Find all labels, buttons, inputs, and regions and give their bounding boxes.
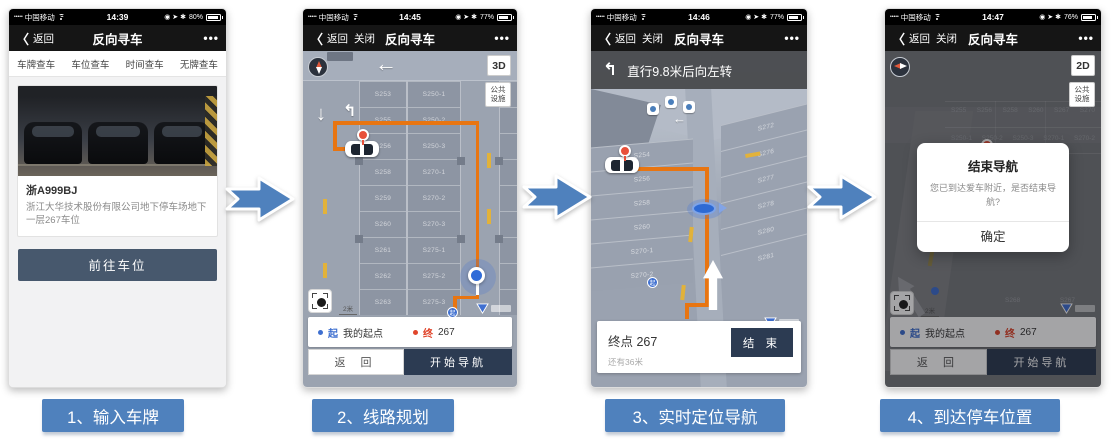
stall-label-row: S250-1 S250-2 S250-3 S270-1 S270-2 [951, 135, 1095, 142]
route-segment [685, 303, 689, 319]
lane-arrow-up-icon [703, 259, 723, 311]
parking-stall: S250-2 [408, 107, 460, 133]
parking-stall: S260 [1028, 107, 1043, 114]
parking-stall: S268 [1005, 297, 1020, 304]
parking-stall: S270-3 [408, 211, 460, 237]
status-time: 14:39 [9, 12, 226, 22]
map-scale: 2米 [921, 305, 939, 317]
phone-1-screenshot: ••••• 中国移动 14:39 ◉ ➤ ✱ 80% 〈 返回 反向寻车 •••… [8, 8, 227, 388]
facility-icon [647, 103, 659, 115]
start-tag: 起 [910, 325, 920, 340]
battery-icon [1081, 14, 1096, 21]
parking-map-3d[interactable]: ↰ 直行9.8米后向左转 ← S254 S256 S258 S260 S270-… [591, 51, 807, 387]
status-bar: ••••• 中国移动 14:46 ◉ ➤ ✱ 77% [591, 9, 807, 25]
pillar [355, 235, 363, 243]
map-vendor-logo [1060, 303, 1095, 314]
locate-me-button[interactable] [308, 289, 332, 313]
status-time: 14:45 [303, 12, 517, 22]
end-navigation-button[interactable]: 结 束 [731, 328, 793, 357]
parking-stall: S259 [360, 185, 406, 211]
dialog-message: 您已到达爱车附近，是否结束导航? [917, 182, 1069, 221]
my-car-icon [605, 157, 639, 173]
compass-icon[interactable] [308, 57, 328, 77]
route-segment [333, 121, 479, 125]
end-dot-icon [413, 330, 418, 335]
garage-camera-photo [18, 86, 217, 176]
search-tabs: 车牌查车 车位查车 时间查车 无牌查车 [9, 51, 226, 77]
parking-stall: S270-1 [408, 159, 460, 185]
tab-spot-search[interactable]: 车位查车 [63, 51, 117, 76]
end-dot-icon [995, 330, 1000, 335]
lane-arrow-left-icon: ← [673, 111, 686, 126]
map-scale: 2米 [339, 303, 357, 315]
car-location-pin-icon [357, 129, 369, 141]
map-mode-3d-button[interactable]: 3D [487, 55, 511, 76]
pillar [457, 157, 465, 165]
phone-3-screenshot: ••••• 中国移动 14:46 ◉ ➤ ✱ 77% 〈 返回 关闭 反向寻车 … [590, 8, 808, 388]
parking-stall: S270-2 [1074, 135, 1095, 142]
close-button[interactable]: 关闭 [642, 31, 663, 46]
navigation-status-panel: 终点 267 结 束 还有36米 [597, 321, 801, 373]
parking-stall: S255 [951, 107, 966, 114]
back-chevron-icon: 〈 [16, 29, 29, 48]
nav-bar: 〈 返回 关闭 反向寻车 ••• [591, 25, 807, 51]
more-menu-button[interactable]: ••• [494, 31, 510, 45]
back-button[interactable]: 返回 [327, 31, 348, 46]
turn-instruction-bar: ↰ 直行9.8米后向左转 [591, 51, 807, 89]
position-dot [931, 287, 939, 295]
back-button[interactable]: 返回 [909, 31, 930, 46]
parking-stall [500, 263, 517, 289]
lane-turn-arrow-icon: ↰ [343, 101, 356, 121]
back-chevron-icon: 〈 [892, 29, 905, 48]
lane-dash [487, 153, 491, 168]
workflow-figure: ••••• 中国移动 14:39 ◉ ➤ ✱ 80% 〈 返回 反向寻车 •••… [0, 0, 1112, 447]
flow-arrow-icon [521, 173, 595, 221]
pillar [495, 157, 503, 165]
route-segment [453, 296, 479, 300]
route-summary-panel: 起 我的起点 终 267 [890, 317, 1096, 347]
parked-car-photo [24, 122, 82, 164]
status-time: 14:47 [885, 12, 1101, 22]
start-dot-icon [318, 330, 323, 335]
parking-stall: S270-2 [408, 185, 460, 211]
lane-dash [323, 263, 327, 278]
battery-icon [206, 14, 221, 21]
status-bar: ••••• 中国移动 14:39 ◉ ➤ ✱ 80% [9, 9, 226, 25]
flow-arrow-icon [224, 175, 298, 223]
status-time: 14:46 [591, 12, 807, 22]
parking-stall [500, 133, 517, 159]
start-tag: 起 [328, 325, 338, 340]
public-facility-button[interactable]: 公共设施 [1069, 82, 1095, 107]
stall-label-row: S255 S256 S258 S260 S267 S270 [951, 107, 1095, 114]
status-bar: ••••• 中国移动 14:47 ◉ ➤ ✱ 76% [885, 9, 1101, 25]
start-navigation-button[interactable]: 开始导航 [987, 349, 1096, 375]
end-point-text: 267 [438, 327, 455, 338]
parking-stall: S263 [360, 289, 406, 315]
route-segment [627, 167, 709, 171]
lane-dash [323, 199, 327, 214]
start-navigation-button[interactable]: 开始导航 [404, 349, 512, 375]
vehicle-card[interactable]: 浙A999BJ 浙江大华技术股份有限公司地下停车场地下一层267车位 [17, 85, 218, 237]
go-to-spot-button[interactable]: 前往车位 [18, 249, 217, 281]
step-label-2: 2、线路规划 [312, 399, 454, 432]
parking-map-2d[interactable]: ← ↓ ↰ S253 S255 S256 S258 S259 S260 S261… [303, 51, 517, 387]
back-chevron-icon: 〈 [310, 29, 323, 48]
parking-stall: S250-1 [408, 81, 460, 107]
parking-stall: S275-1 [408, 237, 460, 263]
step-label-3: 3、实时定位导航 [605, 399, 785, 432]
route-start-badge: 起 [647, 277, 658, 288]
parking-stall: S255 [360, 107, 406, 133]
parked-car-photo [88, 122, 148, 164]
parking-stall: S260 [360, 211, 406, 237]
stall-block-right: S272 S276 S277 S278 S280 S281 [721, 103, 807, 281]
route-summary-panel: 起 我的起点 终 267 [308, 317, 512, 347]
parking-stall: S250-3 [408, 133, 460, 159]
tab-noplate-search[interactable]: 无牌查车 [172, 51, 226, 76]
parking-stall: S270 [1080, 107, 1095, 114]
locate-me-button[interactable] [890, 291, 914, 315]
more-menu-button[interactable]: ••• [1078, 31, 1094, 45]
car-location-pin-icon [619, 145, 631, 157]
nav-bar: 〈 返回 关闭 反向寻车 ••• [885, 25, 1101, 51]
parking-stall [500, 107, 517, 133]
parking-stall: S256 [977, 107, 992, 114]
public-facility-button[interactable]: 公共设施 [485, 82, 511, 107]
back-button[interactable]: 返回 [615, 31, 636, 46]
parked-car-photo [154, 122, 210, 164]
turn-instruction-text: 直行9.8米后向左转 [627, 61, 732, 80]
back-button[interactable]: 返回 [33, 31, 54, 46]
start-point-text: 我的起点 [925, 325, 965, 340]
confirm-button[interactable]: 确定 [917, 222, 1069, 252]
return-button[interactable]: 返 回 [308, 349, 404, 375]
step-label-4: 4、到达停车位置 [880, 399, 1060, 432]
license-plate: 浙A999BJ [26, 182, 209, 198]
current-position-pin-icon [468, 267, 485, 284]
floor-line [18, 164, 217, 166]
parking-stall: S275-2 [408, 263, 460, 289]
remaining-distance: 还有36米 [608, 356, 643, 368]
pillar [355, 157, 363, 165]
current-position-stick [476, 283, 480, 295]
stall-column [499, 81, 517, 315]
parking-map-dimmed[interactable]: S255 S256 S258 S260 S267 S270 S250-1 S25… [885, 51, 1101, 387]
turn-left-icon: ↰ [603, 60, 617, 80]
parking-stall: S267 [1054, 107, 1069, 114]
battery-icon [787, 14, 802, 21]
parking-stall: S253 [360, 81, 406, 107]
warning-pillar [205, 96, 217, 166]
phone-4-screenshot: ••••• 中国移动 14:47 ◉ ➤ ✱ 76% 〈 返回 关闭 反向寻车 … [884, 8, 1102, 388]
status-bar: ••••• 中国移动 14:45 ◉ ➤ ✱ 77% [303, 9, 517, 25]
stall-column: S253 S255 S256 S258 S259 S260 S261 S262 … [359, 81, 407, 315]
pillar [457, 235, 465, 243]
start-dot-icon [900, 330, 905, 335]
end-tag: 终 [423, 325, 433, 340]
parking-stall [500, 185, 517, 211]
map-vendor-logo [476, 303, 511, 314]
lane-arrow-left-icon: ← [375, 51, 397, 77]
destination-text: 终点 267 [608, 331, 657, 350]
compass-icon[interactable] [890, 57, 910, 77]
back-chevron-icon: 〈 [598, 29, 611, 48]
end-navigation-dialog: 结束导航 您已到达爱车附近，是否结束导航? 确定 [917, 143, 1069, 252]
parking-stall: S250-1 [951, 135, 972, 142]
return-button[interactable]: 返 回 [890, 349, 987, 375]
close-button[interactable]: 关闭 [936, 31, 957, 46]
stall-column: S250-1 S250-2 S250-3 S270-1 S270-2 S270-… [407, 81, 461, 315]
position-direction-icon [719, 203, 727, 213]
lane-arrow-down-icon: ↓ [316, 103, 326, 126]
dialog-title: 结束导航 [917, 156, 1069, 175]
parking-stall: S262 [360, 263, 406, 289]
parking-stall: S270-1 [1043, 135, 1064, 142]
nav-bar: 〈 返回 反向寻车 ••• [9, 25, 226, 51]
step-label-1: 1、输入车牌 [42, 399, 184, 432]
lane-dash [680, 285, 685, 300]
start-point-text: 我的起点 [343, 325, 383, 340]
parking-location-desc: 浙江大华技术股份有限公司地下停车场地下一层267车位 [26, 201, 209, 228]
battery-icon [497, 14, 512, 21]
nav-bar: 〈 返回 关闭 反向寻车 ••• [303, 25, 517, 51]
close-button[interactable]: 关闭 [354, 31, 375, 46]
tab-plate-search[interactable]: 车牌查车 [9, 51, 63, 76]
pillar [495, 235, 503, 243]
phone-2-screenshot: ••••• 中国移动 14:45 ◉ ➤ ✱ 77% 〈 返回 关闭 反向寻车 … [302, 8, 518, 388]
parking-stall: S261 [360, 237, 406, 263]
garage-sign [327, 52, 353, 61]
end-tag: 终 [1005, 325, 1015, 340]
more-menu-button[interactable]: ••• [784, 31, 800, 45]
lane-dash [487, 209, 491, 224]
tab-time-search[interactable]: 时间查车 [118, 51, 172, 76]
parking-stall: S258 [1003, 107, 1018, 114]
parking-stall [500, 211, 517, 237]
more-menu-button[interactable]: ••• [203, 31, 219, 45]
parking-stall: S250-3 [1013, 135, 1034, 142]
flow-arrow-icon [806, 173, 880, 221]
map-mode-2d-button[interactable]: 2D [1071, 55, 1095, 76]
current-position-marker [692, 202, 716, 215]
plate-search-result: 浙A999BJ 浙江大华技术股份有限公司地下停车场地下一层267车位 前往车位 [9, 77, 226, 387]
end-point-text: 267 [1020, 327, 1037, 338]
facility-icon [665, 96, 677, 108]
parking-stall: S258 [360, 159, 406, 185]
